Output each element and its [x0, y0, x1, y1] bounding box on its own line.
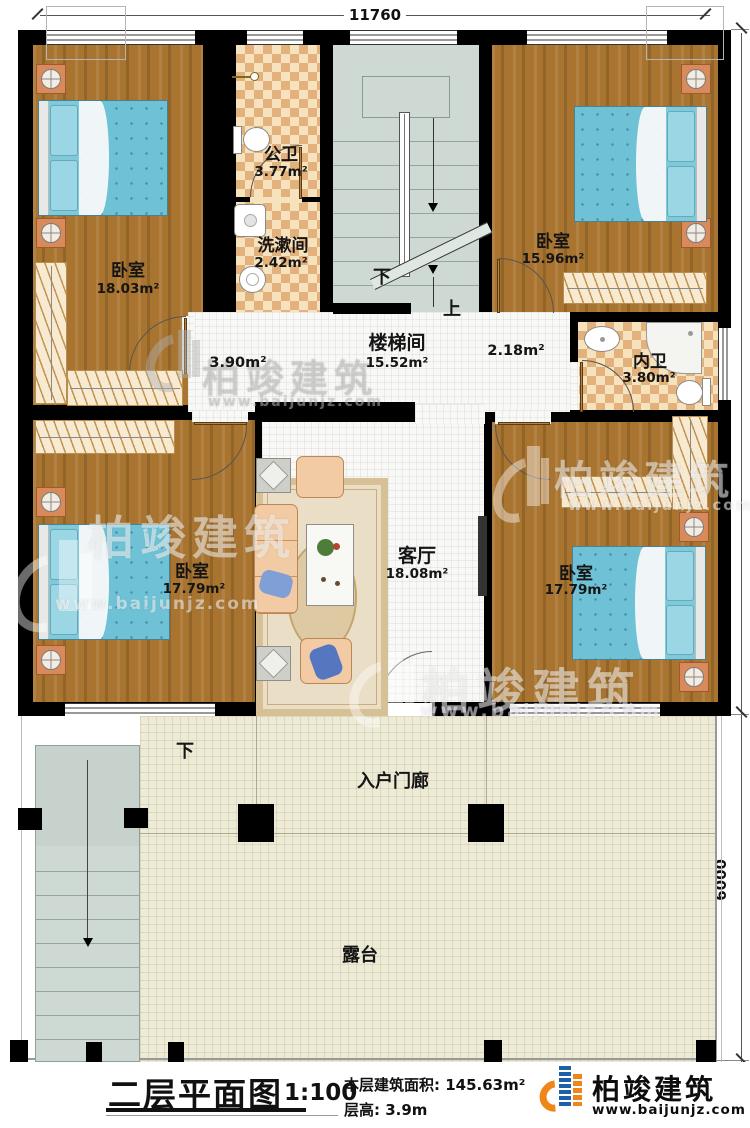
watermark-logo-icon	[14, 540, 92, 635]
washing-machine	[234, 204, 266, 237]
hall-area-right: 2.18m²	[487, 344, 544, 360]
room-label: 洗漱间	[258, 237, 309, 256]
room-area: 3.80m²	[622, 371, 675, 386]
nightstand	[36, 487, 66, 517]
nightstand	[36, 645, 66, 675]
watermark-url: www.baijunjz.com	[55, 594, 261, 614]
room-label: 卧室	[536, 233, 570, 252]
room-area: 18.08m²	[386, 567, 449, 582]
room-label: 客厅	[398, 546, 436, 567]
faucet-knob	[250, 72, 259, 81]
nightstand	[681, 64, 711, 94]
end-table	[256, 646, 291, 681]
terrace-right-parapet-outer	[721, 716, 722, 1062]
room-label: 公卫	[264, 146, 298, 165]
column	[468, 804, 504, 842]
porch-boundary-h	[140, 833, 715, 834]
coffee-table	[306, 524, 354, 606]
room-area: 3.77m²	[254, 165, 307, 180]
room-area: 18.03m²	[97, 282, 160, 297]
outdoor-stair-down-label: 下	[176, 742, 194, 762]
floor-height-line: 层高: 3.9m	[344, 1099, 427, 1120]
wardrobe	[35, 262, 67, 404]
watermark-url: www.baijunjz.com	[568, 496, 750, 514]
window	[718, 328, 731, 400]
column	[124, 808, 148, 828]
room-area: 15.96m²	[522, 252, 585, 267]
floor-area-value: 145.63m²	[445, 1076, 525, 1094]
stair-up-label: 上	[443, 300, 461, 320]
door-opening	[250, 197, 302, 203]
dim-right-line-lower	[741, 713, 742, 1063]
toilet-tank	[233, 126, 242, 154]
floor-height-value: 3.9m	[385, 1101, 427, 1119]
door-opening	[570, 362, 579, 410]
dim-bracket	[46, 6, 126, 60]
door-leaf	[498, 422, 550, 425]
plant	[317, 539, 334, 556]
room-label: 卧室	[111, 262, 145, 281]
title-underline	[106, 1108, 306, 1112]
watermark-logo-icon	[148, 330, 200, 394]
terrace-floor	[140, 716, 715, 1062]
nightstand	[36, 218, 66, 248]
room-label: 卧室	[559, 565, 593, 584]
sink	[584, 326, 620, 352]
tv	[478, 516, 487, 596]
door-leaf	[497, 259, 500, 313]
door-leaf	[194, 422, 247, 425]
nightstand	[36, 64, 66, 94]
bed	[38, 100, 168, 216]
terrace-label: 露台	[342, 946, 378, 966]
floor-area-label: 本层建筑面积:	[344, 1076, 440, 1094]
column	[18, 808, 42, 830]
nightstand	[679, 662, 709, 692]
room-label: 楼梯间	[368, 333, 425, 354]
stair-arrow-icon	[428, 203, 438, 212]
terrace-left-line	[21, 716, 22, 1060]
nightstand	[681, 218, 711, 248]
column	[238, 804, 274, 842]
door-leaf	[580, 362, 583, 412]
armchair	[296, 456, 344, 498]
room-area: 17.79m²	[545, 583, 608, 598]
dim-right-line-upper	[741, 33, 742, 713]
door-opening	[415, 404, 485, 424]
watermark-url: www.baijunjz.com	[420, 700, 662, 722]
floor-plan-page: 11760 11500 6000	[0, 0, 750, 1128]
stair-guide	[433, 277, 434, 307]
window	[350, 30, 457, 45]
door-opening	[192, 410, 248, 422]
window	[247, 30, 303, 45]
room-area: 2.42m²	[254, 256, 307, 271]
wardrobe	[35, 420, 175, 454]
floor-height-label: 层高:	[344, 1101, 380, 1119]
bed	[574, 106, 707, 222]
title-underline-thin	[106, 1115, 338, 1116]
watermark-logo-icon	[497, 446, 549, 526]
stair-guide	[433, 118, 434, 204]
room-label: 内卫	[633, 353, 667, 372]
hall-area-left: 3.90m²	[209, 356, 266, 372]
floor-area-line: 本层建筑面积: 145.63m²	[344, 1074, 525, 1095]
dim-ext-line	[731, 29, 749, 30]
faucet	[232, 76, 252, 78]
room-label: 卧室	[175, 563, 209, 582]
room-area: 15.52m²	[366, 356, 429, 371]
outdoor-stair-guide	[87, 760, 88, 940]
porch-label: 入户门廊	[357, 772, 429, 792]
wardrobe	[563, 272, 707, 304]
dim-top-label: 11760	[344, 6, 406, 24]
stair-rail-line	[404, 114, 405, 275]
brand-logo-icon	[540, 1066, 586, 1116]
terrace-right-parapet	[715, 716, 717, 1062]
brand-url: www.baijunjz.com	[592, 1102, 746, 1118]
dim-bracket	[646, 6, 724, 60]
watermark-brand: 柏竣建筑	[88, 502, 296, 568]
nightstand	[679, 512, 709, 542]
end-table	[256, 458, 291, 493]
watermark-url: www.baijunjz.com	[208, 394, 383, 410]
toilet-tank	[702, 378, 711, 406]
stair-down-label: 下	[373, 268, 391, 288]
room-area: 17.79m²	[163, 582, 226, 597]
toilet-bowl	[676, 380, 703, 405]
window	[65, 703, 215, 716]
outdoor-stair-arrow-icon	[83, 938, 93, 947]
dim-tick	[31, 8, 43, 20]
stair-arrow-icon	[428, 265, 438, 274]
watermark-logo-icon	[352, 652, 414, 730]
